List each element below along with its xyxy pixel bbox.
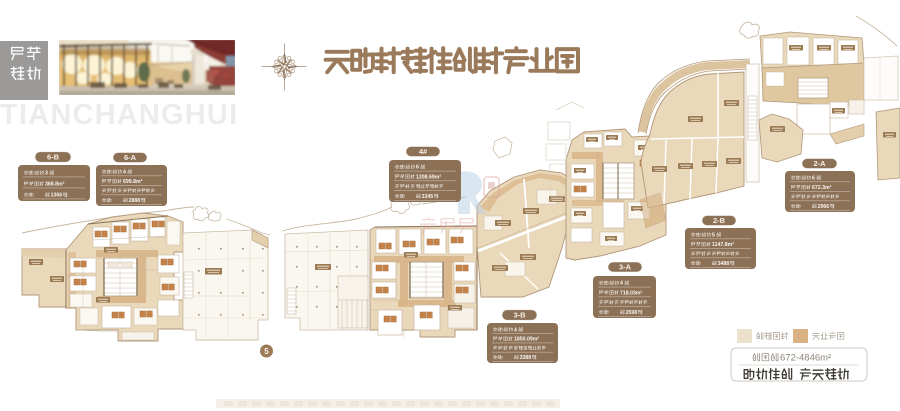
svg-text:672-4846m²: 672-4846m² [780, 353, 831, 364]
svg-text:1366: 1366 [51, 193, 63, 199]
svg-text:4: 4 [514, 327, 517, 333]
svg-text:718.03m²: 718.03m² [620, 290, 642, 296]
svg-text:2888: 2888 [129, 198, 141, 204]
svg-text:5: 5 [264, 347, 269, 356]
svg-text:1208.69m²: 1208.69m² [416, 174, 441, 180]
svg-text:1850.09m²: 1850.09m² [514, 337, 539, 343]
svg-text:4: 4 [620, 281, 623, 287]
svg-text:672.3m²: 672.3m² [812, 185, 832, 191]
svg-text:4#: 4# [419, 147, 428, 156]
svg-text:3388: 3388 [520, 355, 532, 361]
svg-text:TIANCHANGHUI: TIANCHANGHUI [0, 99, 238, 131]
svg-text:3345: 3345 [422, 194, 434, 200]
svg-text:6-A: 6-A [124, 153, 137, 162]
svg-text:4: 4 [123, 169, 126, 175]
svg-text:368.8m²: 368.8m² [45, 182, 65, 188]
svg-text:3: 3 [45, 171, 48, 177]
svg-text:2-A: 2-A [813, 159, 826, 168]
svg-text:3488: 3488 [718, 261, 730, 267]
svg-text:3-A: 3-A [619, 263, 632, 272]
svg-text:5: 5 [712, 232, 715, 238]
svg-text:2966: 2966 [818, 204, 830, 210]
svg-text:2598: 2598 [626, 310, 638, 316]
svg-text:6: 6 [812, 175, 815, 181]
svg-text:2-B: 2-B [713, 216, 726, 225]
svg-text:1147.8m²: 1147.8m² [712, 242, 734, 248]
svg-text:699.8m²: 699.8m² [123, 179, 143, 185]
svg-text:6: 6 [416, 165, 419, 171]
svg-text:3-B: 3-B [513, 311, 526, 320]
svg-text:6-B: 6-B [47, 153, 60, 162]
